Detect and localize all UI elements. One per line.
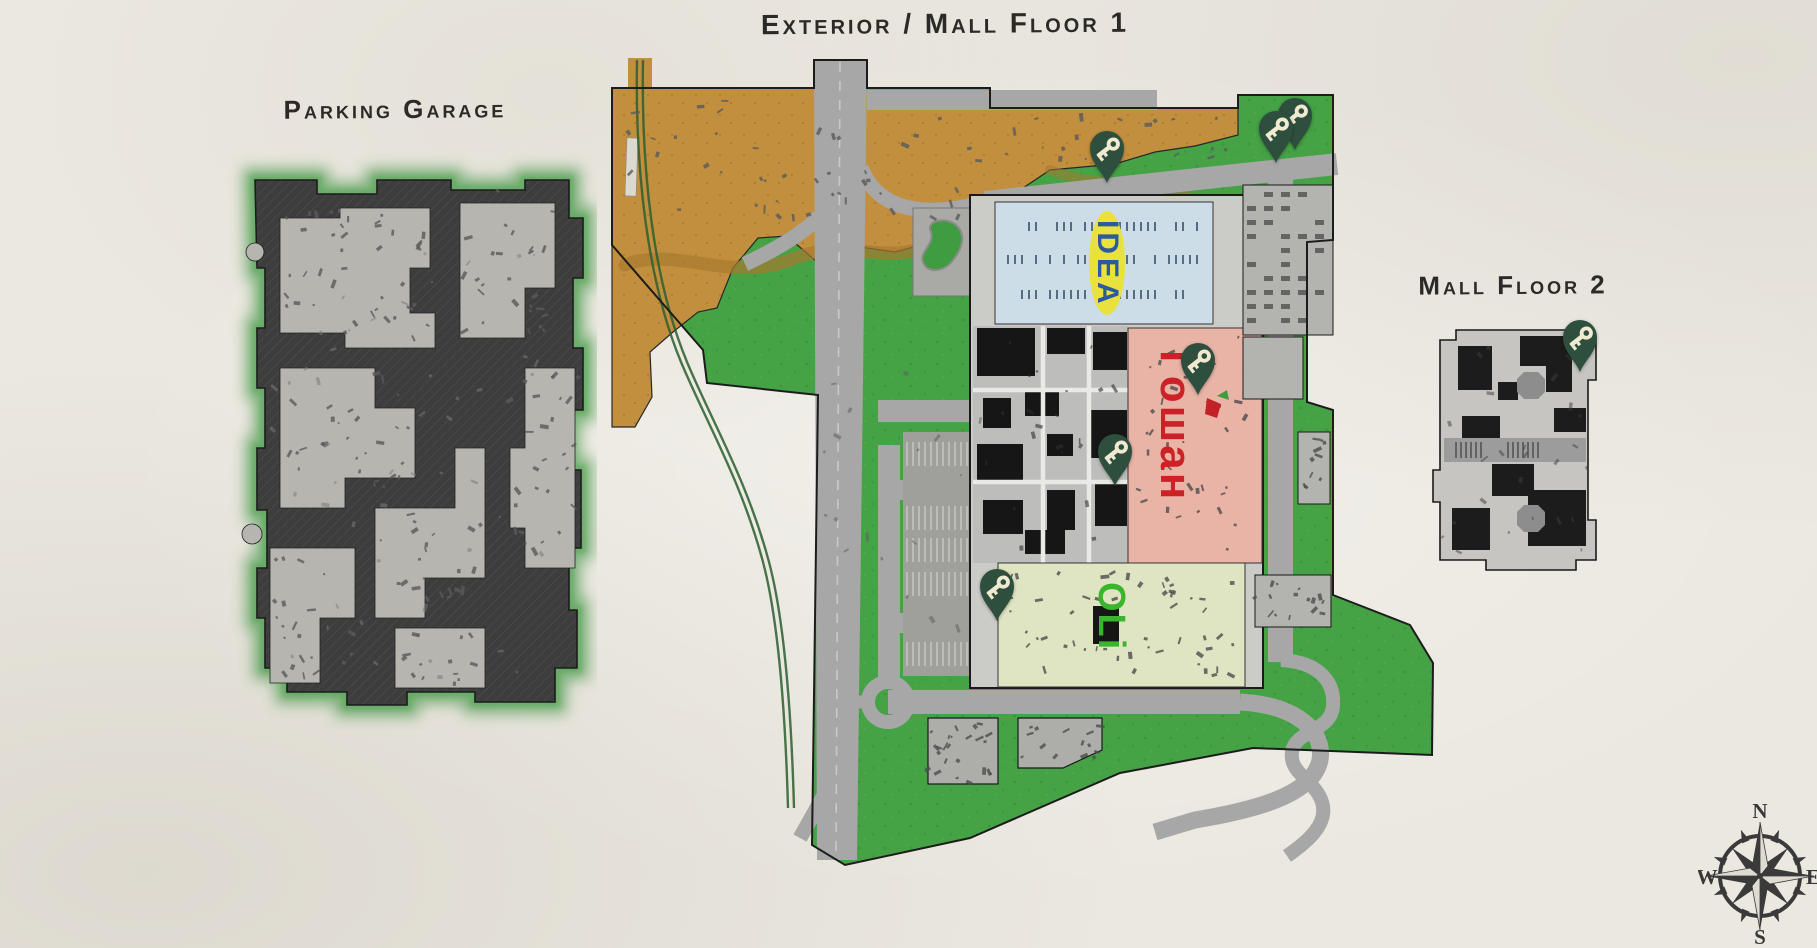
title-exterior-mall-floor-1: Exterior / Mall Floor 1 (595, 6, 1295, 43)
rail-strip (628, 58, 652, 92)
rail-platform (625, 138, 638, 196)
mall-building: IDEA Гошан (970, 195, 1263, 688)
title-parking-garage: Parking Garage (225, 93, 565, 126)
mall-center (973, 326, 1128, 563)
map-page: Exterior / Mall Floor 1 Parking Garage M… (0, 0, 1817, 948)
west-parking-lot (903, 432, 975, 676)
compass-east-label: E (1806, 865, 1817, 889)
map-exterior-mall-floor-1: IDEA Гошан (595, 50, 1440, 875)
store-label-idea: IDEA (1091, 220, 1124, 308)
west-ring-road (878, 445, 900, 680)
drained-pond (913, 208, 975, 296)
store-label-oli: OLi (1090, 582, 1132, 651)
map-mall-floor-2 (1428, 322, 1616, 580)
goshan-store: Гошан (1128, 328, 1262, 563)
compass-south-label: S (1754, 925, 1766, 946)
store-label-goshan: Гошан (1151, 350, 1200, 502)
floor2-walkway (1444, 438, 1586, 462)
idea-store: IDEA (995, 202, 1213, 324)
map-parking-garage (225, 148, 597, 730)
oli-store: OLi (998, 563, 1245, 687)
compass-rose: N E S W (1698, 800, 1817, 946)
compass-north-label: N (1752, 800, 1767, 823)
compass-west-label: W (1698, 865, 1718, 889)
